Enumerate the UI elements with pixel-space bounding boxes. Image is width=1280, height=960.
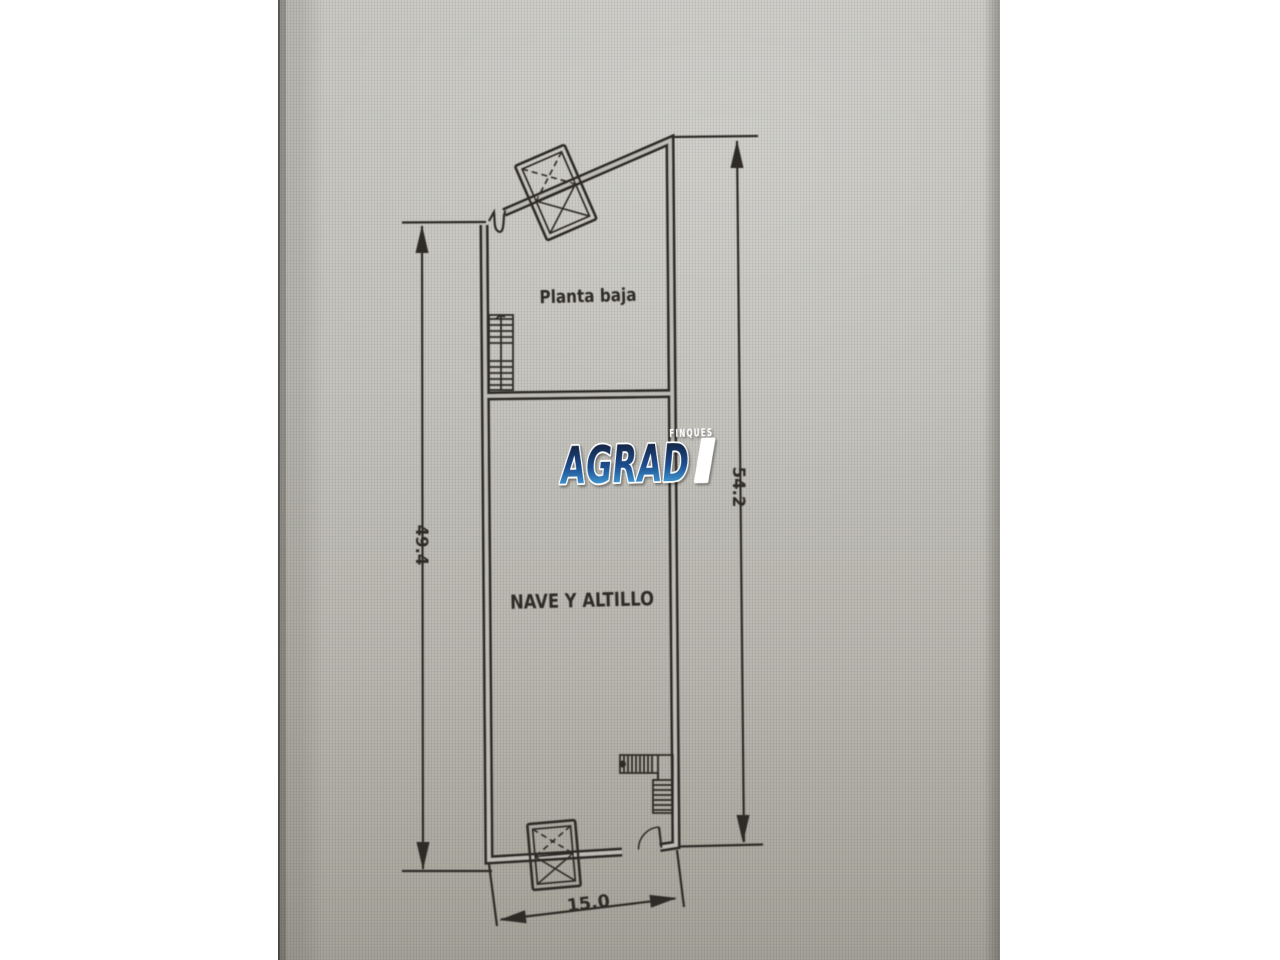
wall-cores (484, 141, 676, 861)
room-label-nave-y-altillo: NAVE Y ALTILLO (510, 587, 655, 614)
agradi-logo: FINQUES AGRAD I (558, 426, 716, 499)
floorplan-svg: Planta baja NAVE Y ALTILLO 49.4 54.2 15.… (0, 0, 1280, 960)
stairs-top-left (489, 315, 513, 390)
stairs-start-dot (620, 761, 625, 766)
door-top-notch (489, 211, 506, 232)
walls (484, 141, 676, 861)
logo-agradi-text: AGRAD (558, 434, 690, 497)
logo-agradi-i: I (693, 429, 716, 496)
dim-label-left: 49.4 (412, 525, 431, 566)
door-bottom (638, 827, 661, 850)
dimension-arrowheads (416, 140, 750, 923)
stairs-bottom-right (620, 755, 673, 813)
dim-label-bottom: 15.0 (566, 891, 611, 916)
plan-labels: Planta baja NAVE Y ALTILLO 49.4 54.2 15.… (412, 285, 748, 917)
elevator-shaft-bottom (527, 820, 581, 890)
elevator-shaft-top (515, 145, 597, 241)
dim-label-right: 54.2 (729, 467, 748, 508)
floorplan-drawing: Planta baja NAVE Y ALTILLO 49.4 54.2 15.… (402, 136, 763, 926)
dimension-lines (402, 136, 763, 926)
page-background: { "page": { "background": "#ffffff" }, "… (0, 0, 1280, 960)
room-label-planta-baja: Planta baja (539, 285, 637, 309)
